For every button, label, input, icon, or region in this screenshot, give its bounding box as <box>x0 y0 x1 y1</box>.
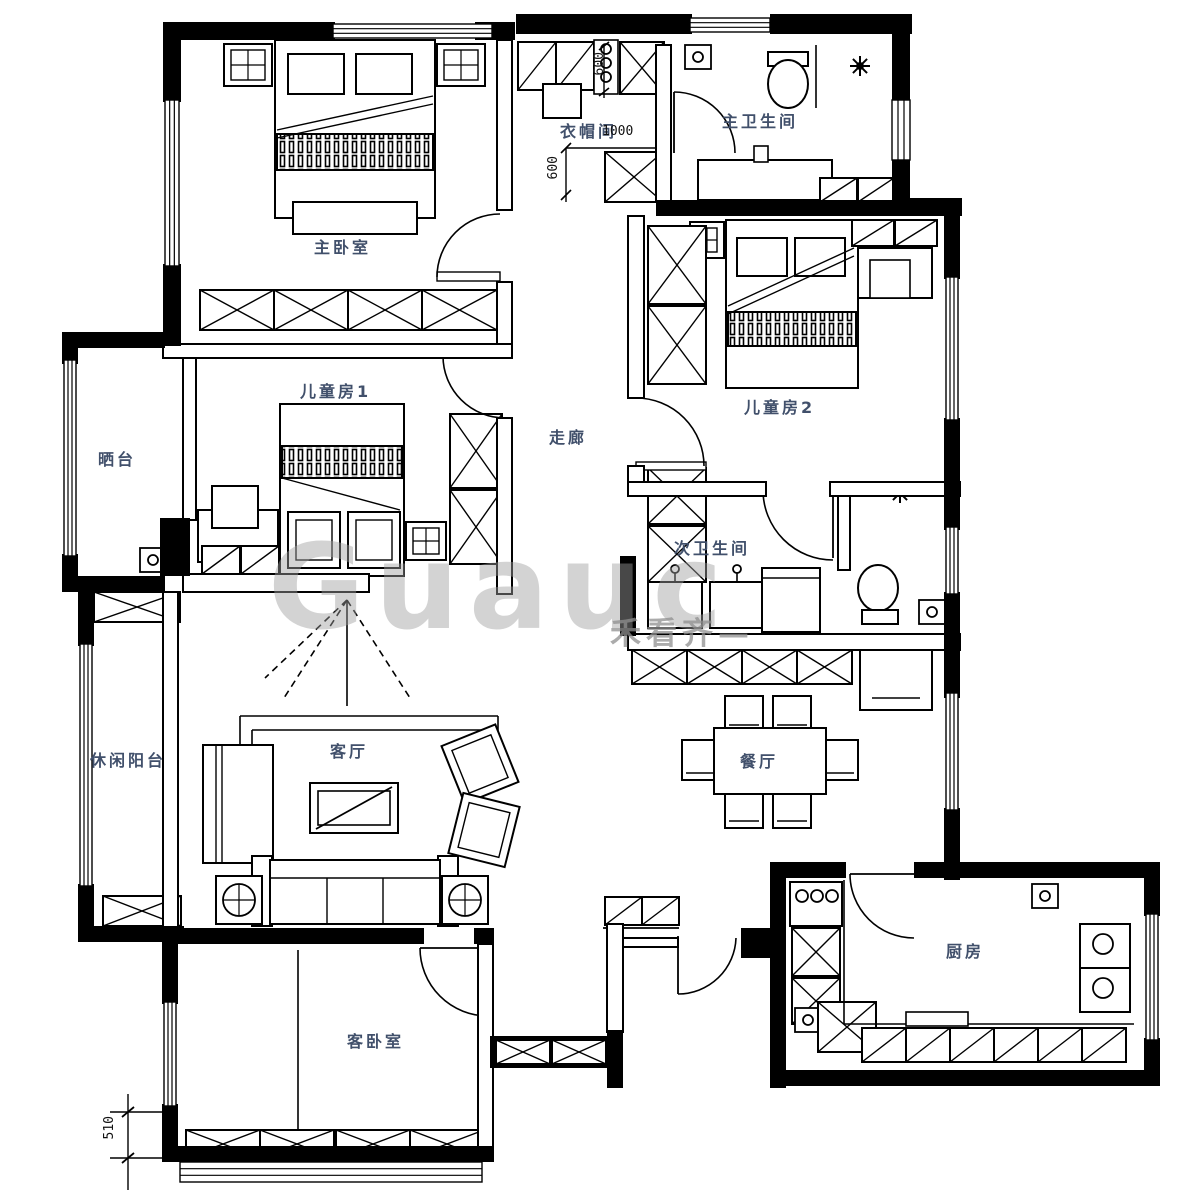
room-label-master-bedroom: 主卧室 <box>314 234 371 258</box>
dim-cloakroom-left: 600 <box>546 156 561 179</box>
room-label-master-bathroom: 主卫生间 <box>722 108 798 132</box>
room-label-kitchen: 厨房 <box>946 938 984 962</box>
floor-plan-drawing <box>0 0 1200 1191</box>
room-label-kids-room-2: 儿童房2 <box>744 394 815 418</box>
room-label-kids-room-1: 儿童房1 <box>300 378 371 402</box>
floor-plan-page: Guauc 禾看齐— 主卧室 衣帽间 主卫生间 儿童房2 晒台 儿童房1 走廊 … <box>0 0 1200 1191</box>
room-label-guest-bedroom: 客卧室 <box>347 1028 404 1052</box>
room-label-second-bathroom: 次卫生间 <box>674 535 750 559</box>
room-label-dining-room: 餐厅 <box>740 748 778 772</box>
dim-cloakroom-width: 1000 <box>602 124 633 139</box>
dim-cloakroom-top: 600 <box>592 52 607 75</box>
room-label-leisure-balcony: 休闲阳台 <box>90 747 166 771</box>
room-label-sun-terrace: 晒台 <box>98 446 136 470</box>
dim-guest-bottom: 510 <box>102 1116 117 1139</box>
room-label-corridor: 走廊 <box>549 424 587 448</box>
room-label-living-room: 客厅 <box>330 738 368 762</box>
